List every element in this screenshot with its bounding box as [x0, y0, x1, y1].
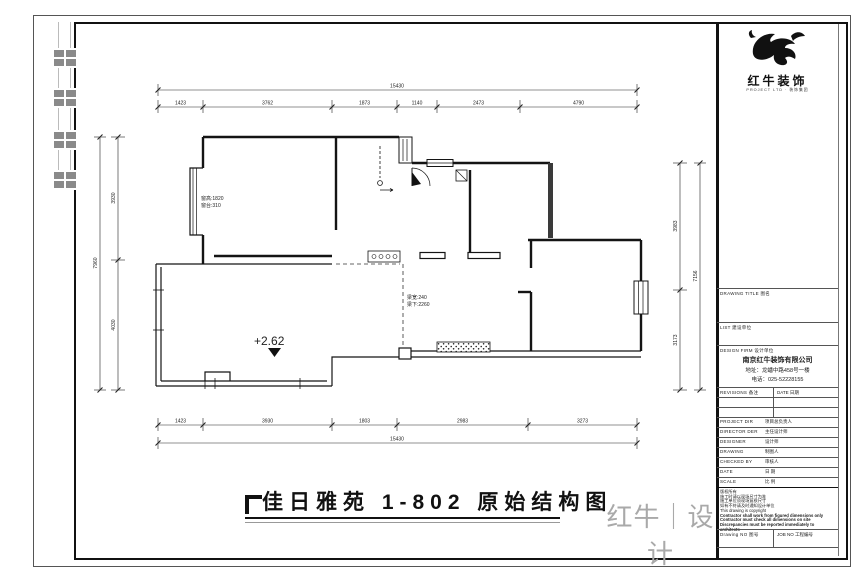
parapet-hatch [437, 342, 490, 352]
svg-text:15430: 15430 [390, 437, 404, 443]
drawing-sheet: 窗高:1820 窗台:310 梁宽:240 梁下:2260 +2.62 [0, 0, 860, 580]
svg-text:3930: 3930 [262, 419, 273, 425]
walls [203, 137, 641, 351]
svg-text:2983: 2983 [457, 419, 468, 425]
door-symbol [412, 168, 430, 186]
svg-text:1140: 1140 [412, 101, 423, 107]
personnel-zh: 日 期 [765, 469, 775, 475]
company-phone: 电话：025-52228155 [717, 375, 838, 383]
personnel-zh: 主任设计师 [765, 429, 788, 435]
title-corner-mark [245, 495, 262, 514]
beam-dashed-line [336, 264, 403, 345]
date-header-label: DATE 日期 [777, 390, 799, 396]
drawing-title: 佳日雅苑 1-802 原始结构图 [262, 486, 612, 516]
svg-text:3930: 3930 [111, 192, 117, 203]
svg-text:1803: 1803 [359, 419, 370, 425]
title-block: 红牛装饰 PROJECT LTD · 装饰集团 DRAWING TITLE 图名… [717, 22, 838, 558]
personnel-zh: 制图人 [765, 449, 779, 455]
job-no-label: JOB NO 工程编号 [777, 532, 813, 538]
personnel-en: DRAWING [720, 449, 744, 454]
svg-text:4030: 4030 [111, 319, 117, 330]
beam-note: 梁下:2260 [407, 301, 430, 308]
personnel-zh: 比 例 [765, 479, 775, 485]
personnel-en: DIRECTOR DER [720, 429, 758, 434]
svg-text:3762: 3762 [262, 101, 273, 107]
svg-text:15430: 15430 [390, 84, 404, 90]
level-mark-triangle [268, 348, 281, 357]
svg-text:3173: 3173 [673, 334, 679, 345]
window-note: 窗台:310 [201, 202, 221, 209]
general-notes: 版权所有 施工时请以现场尺寸为准 施工单位须现场复核尺寸 如有不符请及时通知设计… [720, 490, 835, 532]
beam-note: 梁宽:240 [407, 294, 427, 301]
duct-box [456, 170, 467, 181]
personnel-zh: 项目总负责人 [765, 419, 792, 425]
svg-text:7156: 7156 [693, 270, 699, 281]
personnel-zh: 设计师 [765, 439, 779, 445]
window-note: 窗高:1820 [201, 195, 224, 202]
company-address: 地址：龙蟠中路458号一楼 [717, 366, 838, 374]
note-line: Discrepancies must be reported immediate… [720, 523, 835, 532]
brand-watermark: 红牛｜设计 [598, 497, 723, 571]
svg-text:1423: 1423 [175, 101, 186, 107]
bull-logo-icon [745, 28, 809, 70]
personnel-en: CHECKED BY [720, 459, 752, 464]
company-logo-caption: PROJECT LTD · 装饰集团 [717, 88, 838, 93]
tile-hatch [368, 251, 400, 262]
company-logo-text: 红牛装饰 [717, 72, 838, 89]
svg-text:7960: 7960 [93, 257, 99, 268]
personnel-zh: 审核人 [765, 459, 779, 465]
section-client: LIST 建设单位 [720, 325, 751, 331]
svg-text:2473: 2473 [473, 101, 484, 107]
svg-text:1873: 1873 [359, 101, 370, 107]
title-underline [245, 517, 560, 519]
svg-text:4790: 4790 [573, 101, 584, 107]
company-name: 南京红牛装饰有限公司 [717, 355, 838, 365]
level-mark: +2.62 [254, 334, 285, 348]
riser-symbol [378, 146, 393, 192]
svg-text:3983: 3983 [673, 220, 679, 231]
plan-annotations: 窗高:1820 窗台:310 梁宽:240 梁下:2260 +2.62 [201, 195, 430, 348]
personnel-en: SCALE [720, 479, 736, 484]
revisions-label: REVISIONS 备注 [720, 390, 758, 396]
personnel-en: DESIGNER [720, 439, 746, 444]
title-underline-thin [245, 522, 560, 523]
walls-thin [156, 168, 641, 386]
personnel-en: PROJECT DIR [720, 419, 753, 424]
svg-text:3273: 3273 [577, 419, 588, 425]
drawing-no-label: Drawing NO 图号 [720, 532, 759, 538]
personnel-en: DATE [720, 469, 733, 474]
section-drawing-title: DRAWING TITLE 图名 [720, 291, 770, 297]
svg-text:1423: 1423 [175, 419, 186, 425]
section-design-firm: DESIGN FIRM 设计单位 [720, 348, 774, 354]
